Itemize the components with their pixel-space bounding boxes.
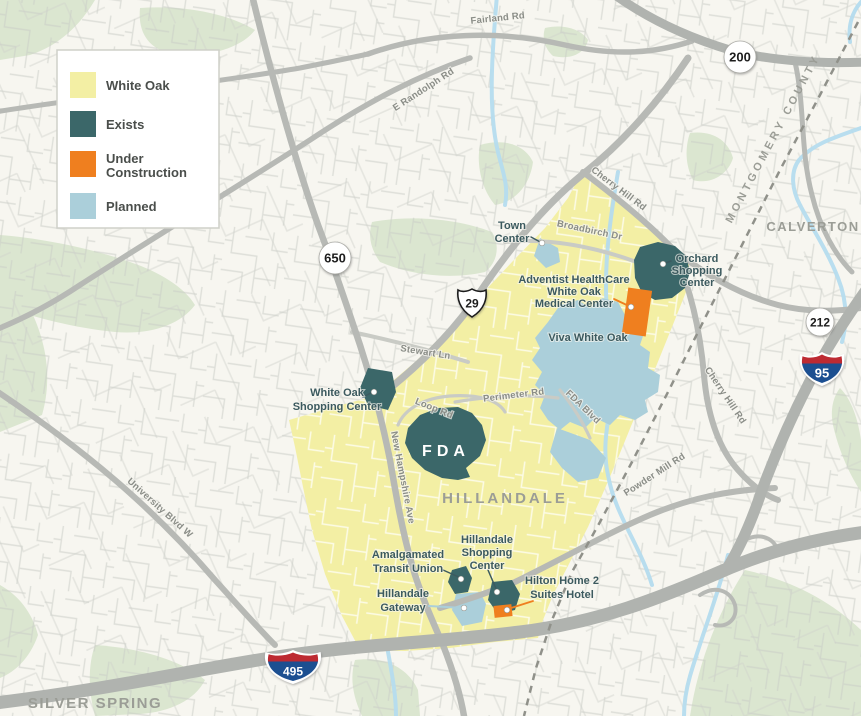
label-viva-white-oak: Viva White Oak — [548, 332, 628, 344]
area-label-hillandale: HILLANDALE — [442, 490, 568, 507]
white-oak-development-map: Fairland Rd E Randolph Rd Cherry Hill Rd… — [0, 0, 861, 716]
area-label-silver-spring: SILVER SPRING — [28, 695, 162, 712]
legend-label-under: Under — [106, 151, 144, 166]
svg-text:212: 212 — [810, 316, 830, 330]
map-canvas: Fairland Rd E Randolph Rd Cherry Hill Rd… — [0, 0, 861, 716]
legend-label-construction: Construction — [106, 165, 187, 180]
label-fda: FDA — [422, 443, 470, 460]
area-label-calverton: CALVERTON — [766, 219, 859, 234]
svg-text:95: 95 — [815, 366, 829, 381]
svg-text:650: 650 — [324, 251, 346, 266]
svg-text:Center: Center — [495, 233, 531, 245]
svg-text:Transit Union: Transit Union — [373, 563, 444, 575]
label-hillandale-sc: Hillandale — [461, 534, 513, 546]
svg-text:Shopping: Shopping — [462, 547, 513, 559]
label-adventist: Adventist HealthCare — [518, 274, 629, 286]
svg-text:495: 495 — [283, 665, 303, 679]
label-atu: Amalgamated — [372, 549, 444, 561]
md-200-shield: 200 — [724, 41, 756, 73]
label-hilton: Hilton Home 2 — [525, 575, 599, 587]
legend-swatch-planned — [70, 193, 96, 219]
legend: White Oak Exists Under Construction Plan… — [57, 50, 219, 228]
md-212-shield: 212 — [806, 308, 834, 336]
svg-text:29: 29 — [465, 297, 479, 311]
svg-text:Center: Center — [680, 277, 716, 289]
legend-label-exists: Exists — [106, 117, 144, 132]
svg-text:Shopping: Shopping — [672, 265, 723, 277]
svg-text:White Oak: White Oak — [547, 286, 602, 298]
svg-text:Suites Hotel: Suites Hotel — [530, 589, 594, 601]
label-town-center: Town — [498, 220, 526, 232]
legend-swatch-exists — [70, 111, 96, 137]
md-650-shield: 650 — [319, 242, 351, 274]
svg-text:200: 200 — [729, 50, 751, 65]
legend-swatch-white-oak — [70, 72, 96, 98]
legend-label-planned: Planned — [106, 199, 157, 214]
label-white-oak-sc: White Oak — [310, 387, 365, 399]
svg-text:Medical Center: Medical Center — [535, 298, 614, 310]
legend-label-white-oak: White Oak — [106, 78, 170, 93]
label-orchard: Orchard — [676, 253, 719, 265]
svg-text:Gateway: Gateway — [380, 602, 426, 614]
label-hillandale-gateway: Hillandale — [377, 588, 429, 600]
svg-text:Center: Center — [470, 560, 506, 572]
legend-swatch-under-construction — [70, 151, 96, 177]
svg-text:Shopping Center: Shopping Center — [293, 401, 382, 413]
